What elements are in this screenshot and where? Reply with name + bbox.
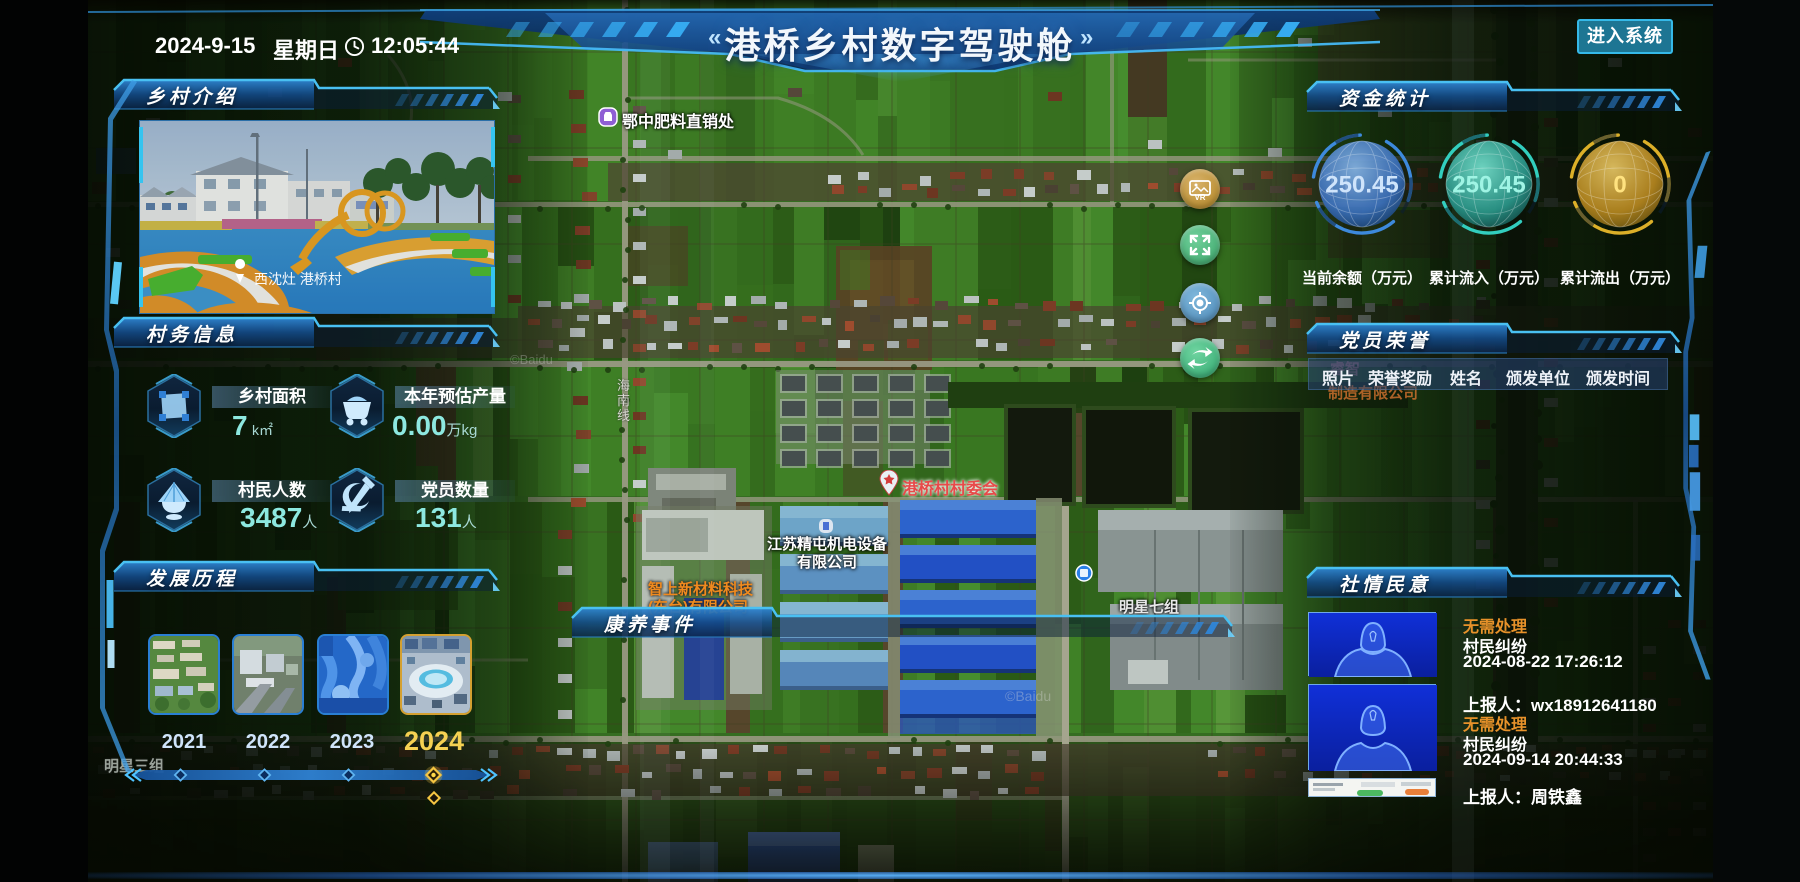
svg-text:250.45: 250.45 [1325,171,1398,198]
svg-text:250.45: 250.45 [1452,171,1525,198]
svg-text:0: 0 [1613,171,1626,198]
svg-text:西沈灶 港桥村: 西沈灶 港桥村 [254,271,342,287]
svg-text:VR: VR [1194,193,1205,202]
